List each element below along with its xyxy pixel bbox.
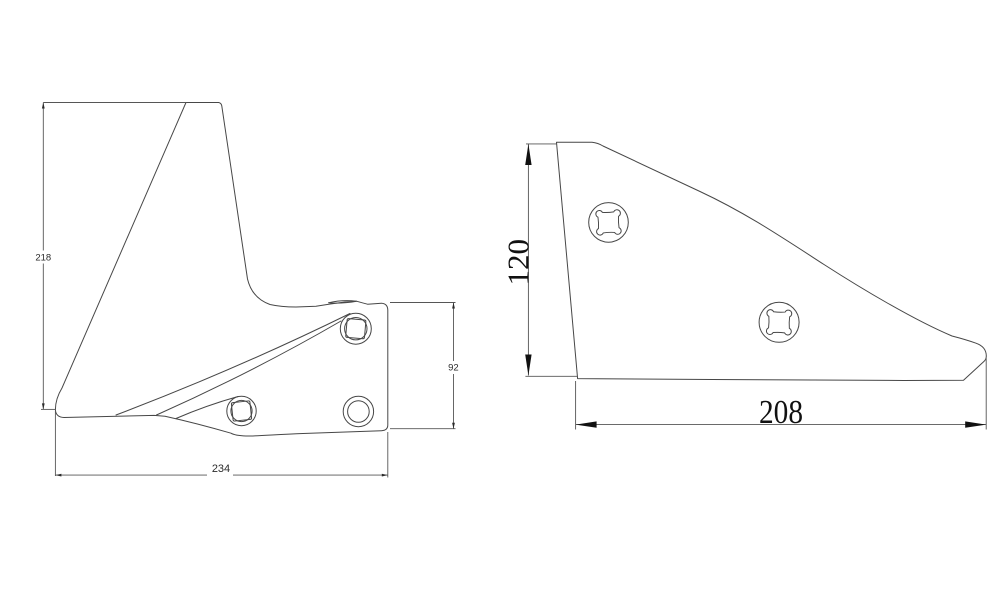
svg-text:218: 218 [35, 252, 51, 263]
svg-text:92: 92 [448, 363, 459, 374]
svg-text:208: 208 [759, 394, 803, 431]
svg-text:234: 234 [212, 463, 230, 475]
svg-text:120: 120 [500, 239, 535, 286]
